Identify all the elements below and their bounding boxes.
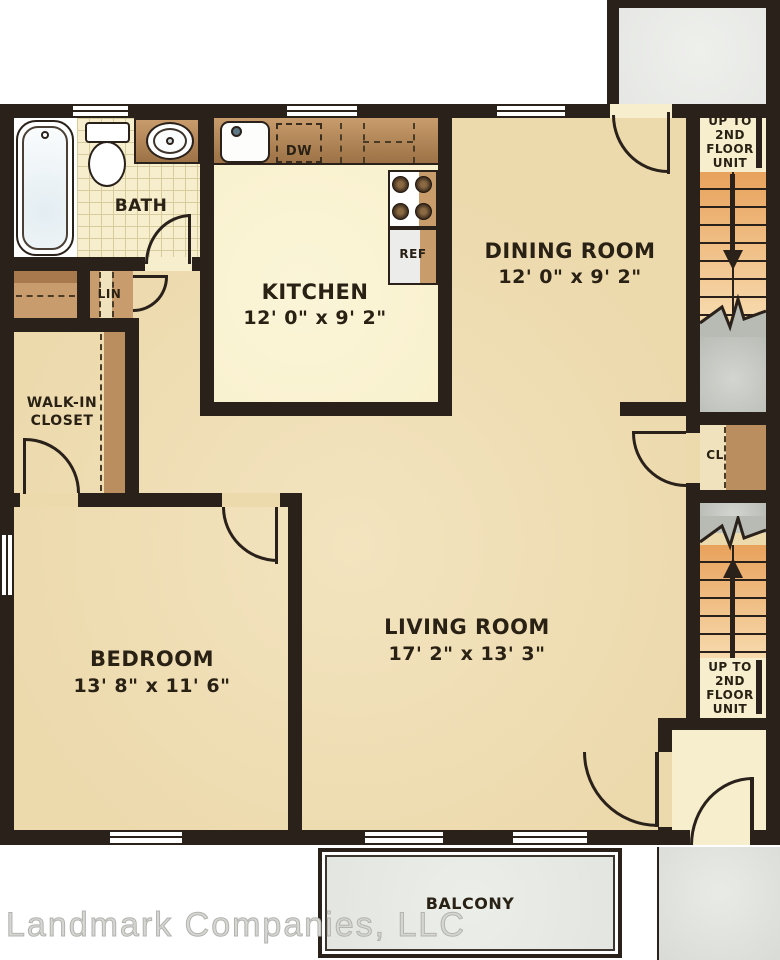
down-arrow-icon	[723, 250, 743, 270]
entry-porch	[619, 8, 766, 104]
bedroom-dims: 13' 8" x 11' 6"	[42, 676, 262, 697]
bedroom-label: BEDROOM	[42, 648, 262, 671]
front-door-panel	[750, 777, 754, 845]
stairs-upper-line4: UNIT	[698, 156, 762, 170]
up-arrow-icon	[723, 558, 743, 578]
reach-in-closet-shelf	[14, 271, 77, 283]
porch-wall-left	[607, 0, 619, 104]
bath-sink-drain	[166, 137, 174, 145]
stove-burner	[392, 203, 409, 220]
walkin-closet-label-line1: WALK-IN	[12, 396, 112, 411]
balcony-slider-door	[365, 830, 443, 845]
bedroom-top-wall-b	[78, 493, 222, 507]
walkin-right-wall	[125, 332, 139, 493]
stove-burner	[392, 176, 409, 193]
hall-closet-door-panel	[632, 431, 686, 434]
stair-cutaway-upper	[700, 330, 766, 412]
exterior-wall-right	[766, 0, 780, 845]
toilet-bowl	[88, 141, 126, 187]
hall-closet-label: CL	[700, 449, 730, 462]
vestibule-left-wall-a	[658, 730, 672, 752]
entry-stoop	[657, 847, 780, 960]
exterior-wall-left	[0, 104, 14, 845]
bedroom-living-divider	[288, 505, 302, 830]
walkin-rod-dashed-line	[100, 334, 102, 491]
bath-kitchen-wall	[200, 118, 214, 416]
stairs-upper-line2: 2ND	[698, 128, 762, 142]
stairs-lower-line2: 2ND	[698, 674, 762, 688]
bedroom-top-wall-a	[0, 493, 20, 507]
cabinet-dashed-1	[340, 123, 342, 163]
stairs-lower-line1: UP TO	[698, 660, 762, 674]
stairs-upper-label: UP TO 2ND FLOOR UNIT	[698, 114, 762, 170]
hall-closet-top-wall	[700, 412, 766, 425]
dining-room-label: DINING ROOM	[460, 240, 680, 263]
walkin-closet-shelf	[104, 332, 125, 493]
dining-room-dims: 12' 0" x 9' 2"	[460, 267, 680, 288]
stair-label-stub-upper	[756, 114, 762, 168]
kitchen-dining-divider	[438, 118, 452, 416]
walkin-top-wall	[0, 318, 139, 332]
living-room-label: LIVING ROOM	[357, 616, 577, 639]
stair-arrow-shaft-down	[730, 174, 735, 252]
walkin-closet-label-line2: CLOSET	[12, 414, 112, 429]
hall-closet-shelf	[726, 425, 766, 490]
bath-window	[73, 104, 128, 118]
bedroom-door-gap	[222, 493, 280, 507]
bedroom-window-left	[0, 535, 14, 595]
bathtub-basin	[22, 126, 68, 250]
stairwell-left-wall-upper	[686, 104, 700, 433]
stair-arrow-shaft-up	[730, 576, 735, 658]
bathtub-drain	[41, 131, 49, 139]
vestibule-door-panel	[655, 752, 659, 827]
stairs-lower-line3: FLOOR	[698, 688, 762, 702]
walkin-door-panel	[23, 438, 26, 494]
stairs-lower-label: UP TO 2ND FLOOR UNIT	[698, 660, 762, 716]
stove-burner	[415, 176, 432, 193]
bath-door-panel	[188, 214, 191, 264]
vestibule-door-gap	[658, 752, 672, 827]
bedroom-window-bottom	[110, 830, 182, 845]
bath-label: BATH	[96, 197, 186, 216]
linen-closet-label: LIN	[86, 288, 133, 301]
kitchen-bottom-wall	[200, 402, 452, 416]
stove-burner	[415, 203, 432, 220]
dining-entry-door-panel	[667, 112, 670, 174]
kitchen-window	[287, 104, 357, 118]
living-window-bottom	[513, 830, 587, 845]
hall-closet-door-gap	[686, 433, 700, 483]
stairs-upper-line3: FLOOR	[698, 142, 762, 156]
vestibule-left-wall-b	[658, 827, 672, 845]
kitchen-faucet	[231, 126, 242, 137]
walkin-door-gap	[20, 493, 78, 507]
kitchen-sink	[220, 121, 270, 163]
refrigerator-label: REF	[390, 248, 436, 261]
cabinet-dashed-4	[363, 141, 413, 143]
floor-plan: DW REF UP TO 2ND FLOOR UNIT CL	[0, 0, 780, 960]
cabinet-dashed-2	[363, 123, 365, 163]
living-room-dims: 17' 2" x 13' 3"	[357, 644, 577, 665]
toilet-tank	[85, 122, 130, 143]
hall-closet-bottom-wall	[700, 490, 766, 503]
dining-window	[497, 104, 565, 118]
stair-label-stub-lower	[756, 660, 762, 714]
kitchen-label: KITCHEN	[224, 281, 406, 304]
vestibule-top-wall	[658, 718, 766, 730]
bedroom-door-panel	[275, 507, 278, 564]
watermark: Landmark Companies, LLC	[6, 906, 466, 945]
stairs-lower-line4: UNIT	[698, 702, 762, 716]
cabinet-dashed-3	[413, 123, 415, 163]
stairwell-left-wall-lower	[686, 483, 700, 718]
closet-rod-dashed-line	[16, 295, 75, 297]
linen-door-panel	[133, 275, 168, 278]
kitchen-dims: 12' 0" x 9' 2"	[224, 308, 406, 329]
porch-wall-top	[607, 0, 780, 8]
dishwasher-label: DW	[280, 145, 318, 159]
